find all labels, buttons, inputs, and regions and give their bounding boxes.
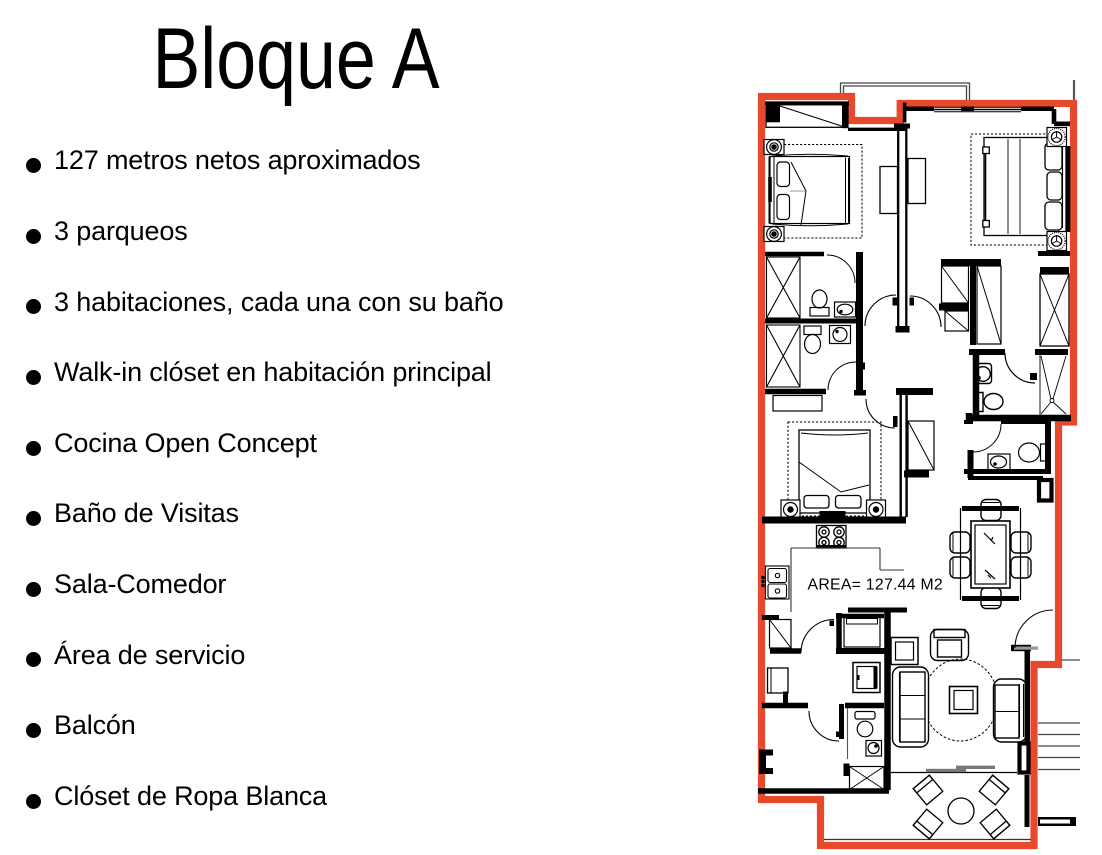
svg-text:AREA= 127.44 M2: AREA= 127.44 M2 [808, 577, 943, 594]
